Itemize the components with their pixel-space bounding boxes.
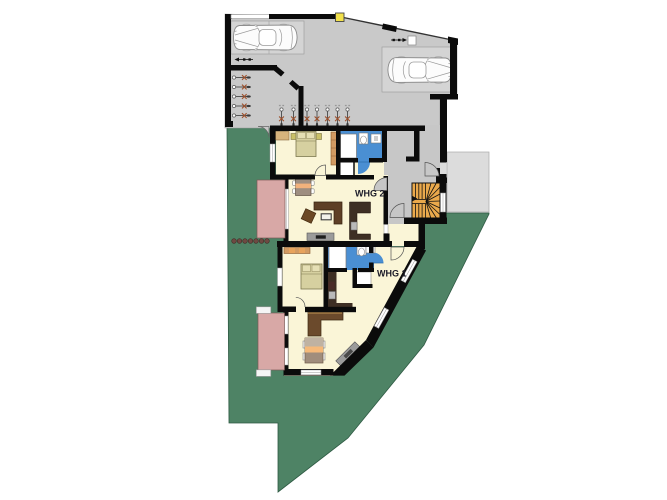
svg-text:WHG 2: WHG 2 (355, 189, 385, 199)
svg-text:WHG 1: WHG 1 (377, 269, 407, 279)
